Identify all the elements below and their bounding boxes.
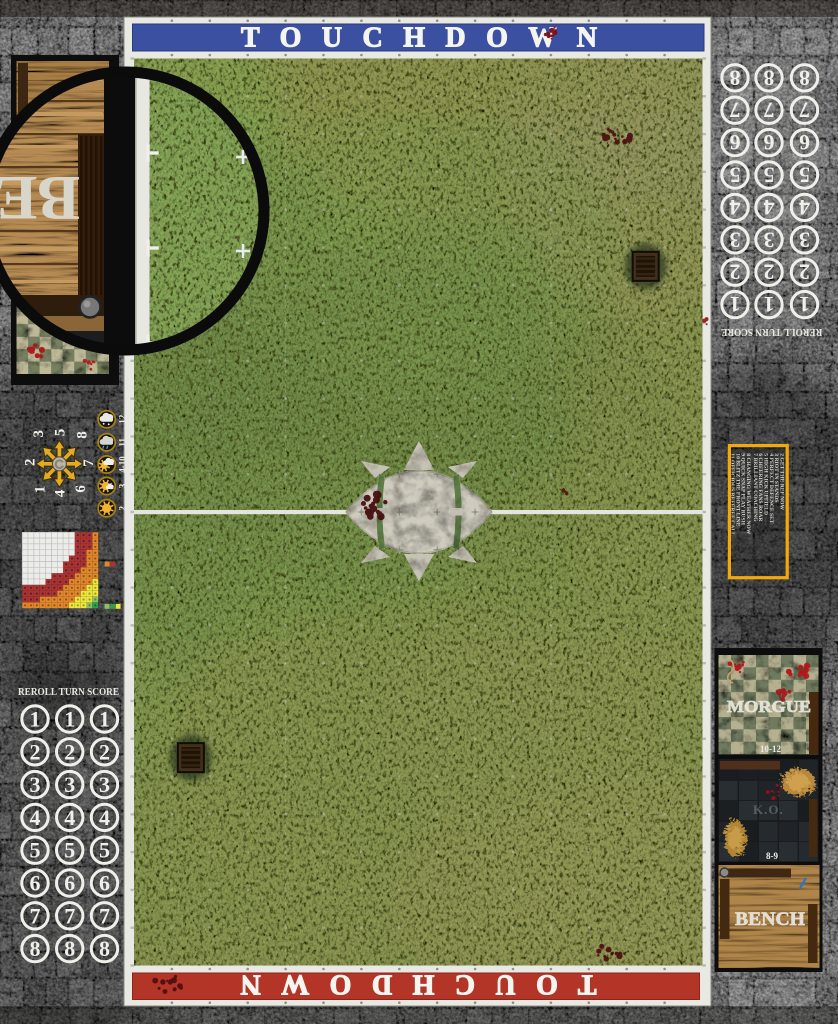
- svg-text:4: 4: [64, 805, 75, 830]
- svg-text:4: 4: [799, 195, 810, 220]
- svg-text:5: 5: [764, 163, 775, 188]
- svg-text:8: 8: [30, 936, 41, 961]
- svg-text:7 BRILLIANT COACHING: 7 BRILLIANT COACHING: [752, 453, 758, 522]
- svg-text:8: 8: [99, 936, 110, 961]
- svg-text:5: 5: [64, 838, 75, 863]
- svg-text:8: 8: [799, 65, 810, 90]
- svg-text:2: 2: [99, 739, 110, 764]
- svg-text:2: 2: [730, 260, 741, 285]
- svg-text:10-12: 10-12: [760, 744, 781, 754]
- svg-text:3: 3: [64, 772, 75, 797]
- svg-text:2: 2: [764, 260, 775, 285]
- svg-text:TOUCHDOWN: TOUCHDOWN: [241, 23, 597, 54]
- svg-text:1: 1: [99, 707, 110, 732]
- svg-text:8-9: 8-9: [766, 851, 778, 861]
- svg-text:2: 2: [118, 505, 128, 510]
- svg-text:4: 4: [99, 805, 110, 830]
- svg-text:4: 4: [730, 195, 741, 220]
- svg-text:4: 4: [764, 195, 775, 220]
- svg-text:3: 3: [30, 772, 41, 797]
- svg-text:REROLL TURN SCORE: REROLL TURN SCORE: [721, 326, 822, 337]
- svg-text:K.O.: K.O.: [753, 802, 784, 817]
- svg-text:6: 6: [73, 485, 89, 493]
- svg-text:1: 1: [764, 292, 775, 317]
- svg-text:5: 5: [99, 838, 110, 863]
- svg-text:3: 3: [730, 227, 741, 252]
- svg-text:MORGUE: MORGUE: [727, 697, 811, 716]
- svg-text:5: 5: [52, 429, 68, 437]
- svg-text:8: 8: [75, 431, 91, 439]
- svg-text:1: 1: [730, 292, 741, 317]
- svg-text:5: 5: [30, 838, 41, 863]
- svg-text:3: 3: [31, 430, 47, 438]
- svg-text:2: 2: [22, 459, 38, 467]
- svg-text:6: 6: [99, 871, 110, 896]
- svg-text:2: 2: [799, 260, 810, 285]
- svg-text:1: 1: [30, 707, 41, 732]
- svg-text:4-10: 4-10: [118, 456, 128, 473]
- svg-text:3: 3: [799, 227, 810, 252]
- svg-text:6: 6: [764, 130, 775, 155]
- svg-text:7: 7: [81, 459, 97, 467]
- svg-text:4: 4: [52, 489, 68, 497]
- svg-text:5: 5: [799, 163, 810, 188]
- svg-text:2: 2: [64, 739, 75, 764]
- svg-text:3: 3: [118, 483, 128, 488]
- svg-text:7: 7: [764, 98, 775, 123]
- svg-text:6: 6: [64, 871, 75, 896]
- svg-text:12: 12: [118, 414, 128, 424]
- svg-text:2: 2: [30, 739, 41, 764]
- svg-text:6: 6: [730, 130, 741, 155]
- svg-text:11: 11: [118, 438, 128, 447]
- svg-text:4: 4: [30, 805, 41, 830]
- svg-text:1: 1: [64, 707, 75, 732]
- svg-text:7: 7: [730, 98, 741, 123]
- svg-text:8: 8: [730, 65, 741, 90]
- svg-text:7: 7: [64, 903, 75, 928]
- svg-text:6: 6: [30, 871, 41, 896]
- svg-text:7: 7: [30, 903, 41, 928]
- svg-text:7: 7: [99, 903, 110, 928]
- svg-text:TOUCHDOWN: TOUCHDOWN: [241, 969, 597, 1000]
- svg-text:6: 6: [799, 130, 810, 155]
- svg-text:3: 3: [99, 772, 110, 797]
- svg-text:8: 8: [764, 65, 775, 90]
- svg-text:BENCH: BENCH: [735, 909, 805, 930]
- svg-text:BE: BE: [0, 163, 80, 234]
- svg-text:7: 7: [799, 98, 810, 123]
- svg-text:1: 1: [799, 292, 810, 317]
- svg-text:3: 3: [764, 227, 775, 252]
- svg-text:1: 1: [32, 486, 48, 494]
- svg-text:8: 8: [64, 936, 75, 961]
- svg-text:REROLL TURN SCORE: REROLL TURN SCORE: [18, 687, 119, 698]
- svg-text:5: 5: [730, 163, 741, 188]
